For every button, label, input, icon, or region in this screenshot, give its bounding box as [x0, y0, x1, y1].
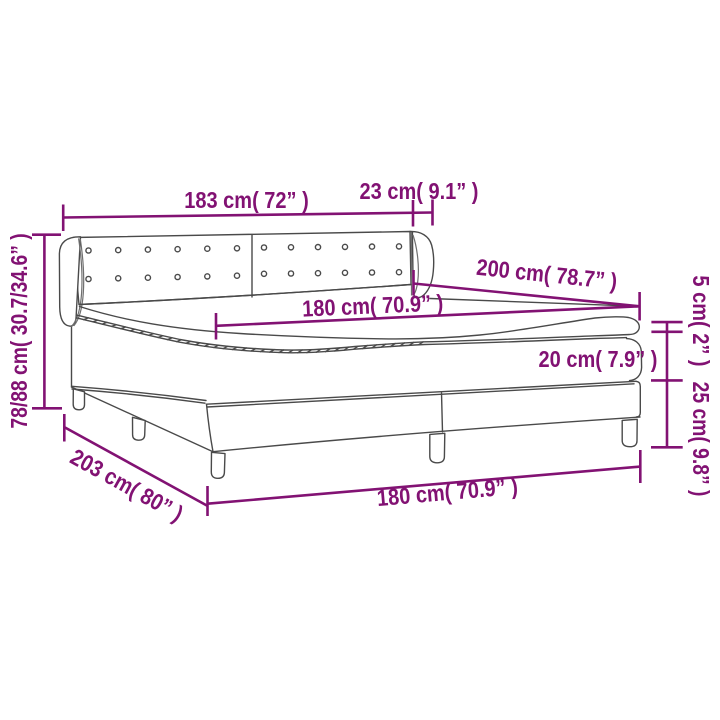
svg-text:20 cm( 7.9” ): 20 cm( 7.9” )	[539, 346, 658, 373]
svg-text:78/88 cm( 30.7/34.6” ): 78/88 cm( 30.7/34.6” )	[8, 233, 33, 428]
svg-text:183 cm( 72” ): 183 cm( 72” )	[184, 187, 309, 214]
svg-text:23 cm( 9.1” ): 23 cm( 9.1” )	[360, 178, 479, 205]
svg-text:5 cm( 2” ): 5 cm( 2” )	[688, 275, 715, 366]
svg-text:25 cm( 9.8” ): 25 cm( 9.8” )	[688, 382, 713, 497]
